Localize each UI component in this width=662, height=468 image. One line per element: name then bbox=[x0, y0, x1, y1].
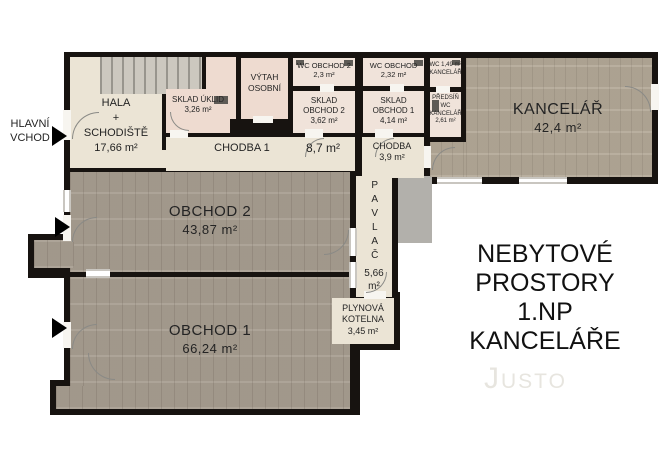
window bbox=[86, 269, 110, 278]
watermark-justo: Justo bbox=[484, 362, 567, 396]
sklad-uklid-area: 3,26 m² bbox=[163, 105, 233, 115]
hala-area: 17,66 m² bbox=[70, 141, 162, 156]
floor-plan: HLAVNÍ VCHOD HALA + SCHODIŠTĚ 17,66 m² S… bbox=[0, 0, 662, 468]
predsin-name: PŘEDSÍŇ bbox=[428, 95, 463, 103]
sklad-obchod1-name: SKLAD bbox=[361, 96, 426, 106]
plan-title-line1: NEBYTOVÉ bbox=[432, 240, 658, 269]
kotelna-name2: KOTELNA bbox=[330, 314, 396, 325]
pavlac-area1: 5,66 bbox=[364, 268, 383, 281]
chodba-name: CHODBA bbox=[360, 141, 424, 152]
wc-obchod2-label: WC OBCHOD 2 2,3 m² bbox=[291, 61, 357, 80]
terrace-area bbox=[398, 176, 432, 243]
hala-name2: SCHODIŠTĚ bbox=[70, 126, 162, 141]
wc-obchod-name: WC OBCHOD bbox=[361, 61, 426, 70]
sklad-obchod2-name2: OBCHOD 2 bbox=[291, 106, 357, 116]
door-opening-wc-kancelar bbox=[436, 86, 450, 93]
sklad-uklid-label: SKLAD ÚKLID 3,26 m² bbox=[163, 95, 233, 115]
window bbox=[63, 190, 71, 212]
kotelna-area: 3,45 m² bbox=[330, 326, 396, 337]
obchod1-name: OBCHOD 1 bbox=[100, 322, 320, 341]
wc-obchod-label: WC OBCHOD 2,32 m² bbox=[361, 61, 426, 80]
hala-plus: + bbox=[70, 111, 162, 126]
sklad-obchod2-label: SKLAD OBCHOD 2 3,62 m² bbox=[291, 96, 357, 126]
sklad-uklid-name: SKLAD ÚKLID bbox=[163, 95, 233, 105]
obchod2-area: 43,87 m² bbox=[100, 222, 320, 238]
vytah-name2: OSOBNÍ bbox=[239, 83, 290, 94]
kancelar-area: 42,4 m² bbox=[460, 120, 656, 136]
window bbox=[437, 177, 482, 184]
wc-obchod-area: 2,32 m² bbox=[361, 70, 426, 79]
door-opening-wc-obchod bbox=[390, 84, 404, 92]
pavlac-label: PAVLAČ 5,66 m² bbox=[356, 180, 392, 293]
obchod2-name: OBCHOD 2 bbox=[100, 203, 320, 222]
chodba1-name: CHODBA 1 bbox=[192, 142, 292, 156]
predsin-name3: KANCELÁŘ bbox=[428, 111, 463, 119]
hala-name: HALA bbox=[70, 96, 162, 111]
entrance-arrow-icon bbox=[55, 217, 70, 237]
plan-title-line2: PROSTORY bbox=[432, 269, 658, 298]
door-opening-wc-obchod2 bbox=[320, 84, 334, 92]
entrance-arrow-icon bbox=[52, 318, 67, 338]
plan-title: NEBYTOVÉ PROSTORY 1.NP KANCELÁŘE bbox=[432, 240, 658, 356]
hala-label: HALA + SCHODIŠTĚ 17,66 m² bbox=[70, 96, 162, 155]
main-entrance-label-line1: HLAVNÍ bbox=[4, 118, 56, 132]
door-opening-sklad-uklid bbox=[170, 130, 188, 138]
wc-kancelar-name: WC 1,49 m² bbox=[428, 62, 463, 70]
obchod1-bay bbox=[56, 386, 86, 409]
chodba-label: CHODBA 3,9 m² bbox=[360, 141, 424, 164]
predsin-label: PŘEDSÍŇ WC KANCELÁŘ 2,61 m² bbox=[428, 95, 463, 126]
door-opening-vytah bbox=[253, 116, 273, 123]
chodba1-area-label: 8,7 m² bbox=[296, 141, 350, 156]
obchod2-label: OBCHOD 2 43,87 m² bbox=[100, 203, 320, 238]
sklad-obchod1-label: SKLAD OBCHOD 1 4,14 m² bbox=[361, 96, 426, 126]
kotelna-label: PLYNOVÁ KOTELNA 3,45 m² bbox=[330, 303, 396, 337]
door-opening-sklad-obchod2 bbox=[305, 129, 323, 138]
sklad-obchod1-area: 4,14 m² bbox=[361, 116, 426, 126]
vytah-label: VÝTAH OSOBNÍ bbox=[239, 72, 290, 93]
obchod1-label: OBCHOD 1 66,24 m² bbox=[100, 322, 320, 357]
predsin-area: 2,61 m² bbox=[428, 118, 463, 126]
window bbox=[519, 177, 567, 184]
pavlac-area2: m² bbox=[368, 281, 380, 294]
plan-title-line3: 1.NP bbox=[432, 298, 658, 327]
chodba-area: 3,9 m² bbox=[360, 152, 424, 163]
door-opening-chodba-kancelar bbox=[424, 146, 431, 168]
obchod1-area: 66,24 m² bbox=[100, 341, 320, 357]
chodba1-area: 8,7 m² bbox=[296, 141, 350, 156]
plan-title-line4: KANCELÁŘE bbox=[432, 327, 658, 356]
wc-kancelar-label: WC 1,49 m² KANCELÁŘ bbox=[428, 62, 463, 78]
kancelar-label: KANCELÁŘ 42,4 m² bbox=[460, 100, 656, 136]
vytah-name: VÝTAH bbox=[239, 72, 290, 83]
main-entrance-label: HLAVNÍ VCHOD bbox=[4, 118, 56, 146]
sklad-obchod2-name: SKLAD bbox=[291, 96, 357, 106]
obchod2-bay bbox=[34, 240, 74, 268]
pavlac-name: PAVLAČ bbox=[368, 180, 381, 264]
wc-obchod2-name: WC OBCHOD 2 bbox=[291, 61, 357, 70]
sklad-obchod2-area: 3,62 m² bbox=[291, 116, 357, 126]
kancelar-name: KANCELÁŘ bbox=[460, 100, 656, 120]
door-opening-sklad-obchod1 bbox=[375, 129, 393, 138]
chodba1-label: CHODBA 1 bbox=[192, 142, 292, 156]
wc-kancelar-name2: KANCELÁŘ bbox=[428, 70, 463, 78]
predsin-name2: WC bbox=[428, 103, 463, 111]
kotelna-name: PLYNOVÁ bbox=[330, 303, 396, 314]
main-entrance-label-line2: VCHOD bbox=[4, 132, 56, 146]
wc-obchod2-area: 2,3 m² bbox=[291, 70, 357, 79]
sklad-obchod1-name2: OBCHOD 1 bbox=[361, 106, 426, 116]
